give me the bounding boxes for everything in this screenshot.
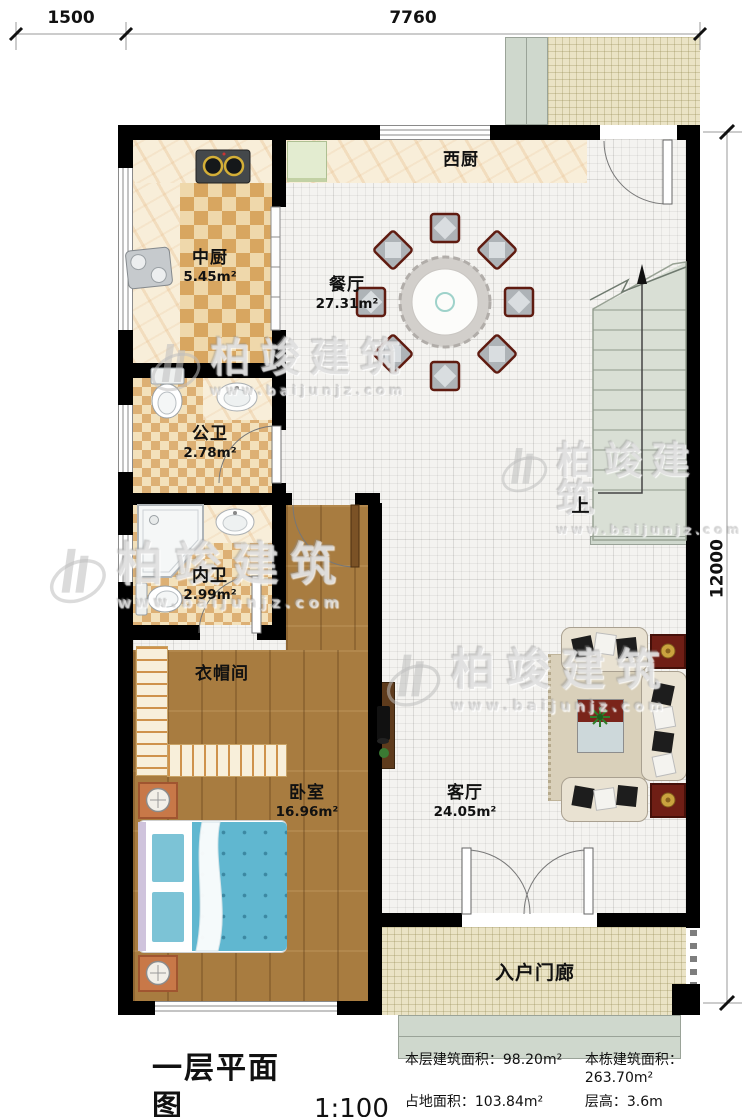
label-stair-up: 上: [568, 496, 594, 519]
kitchen-counter-top: [133, 139, 272, 185]
watermark-logo: [385, 648, 442, 712]
wall-bottom-living-left: [380, 913, 462, 927]
watermark-brand: 柏竣建筑: [210, 335, 410, 381]
room-area: 16.96m²: [257, 804, 357, 821]
terrace-floor: [548, 37, 700, 125]
floor-height-text: 层高：3.6m: [585, 1094, 737, 1112]
site-area-text: 占地面积：103.84m²: [405, 1094, 575, 1112]
wall-top-right: [490, 125, 600, 140]
label-west-kitchen: 西厨: [411, 150, 511, 171]
wall-bottom-living-right: [597, 913, 686, 927]
drawing-scale: 1:100: [314, 1093, 389, 1117]
watermark-logo: [500, 442, 549, 497]
stair-up-text: 上: [568, 496, 594, 519]
watermark-url: www.baijunjz.com: [210, 384, 410, 399]
watermark-logo: [150, 338, 202, 396]
room-area: 2.99m²: [160, 587, 260, 604]
window-kitchen-left: [118, 168, 133, 330]
pillow-1: [150, 832, 186, 884]
watermark-url: www.baijunjz.com: [451, 699, 671, 716]
watermark-brand: 柏竣建筑: [451, 645, 671, 696]
room-area: 24.05m²: [415, 804, 515, 821]
title-block: 一层平面图 1:100 本层建筑面积：98.20m² 本栋建筑面积：263.70…: [152, 1050, 737, 1117]
cloakroom-wardrobe-bottom: [167, 744, 287, 777]
sofa-bottom: [561, 777, 648, 822]
drawing-title: 一层平面图: [152, 1050, 302, 1117]
label-entry-porch: 入户门廊: [460, 962, 610, 986]
floor-area-text: 本层建筑面积：98.20m²: [405, 1052, 575, 1087]
room-name: 衣帽间: [162, 664, 282, 685]
side-table-bottom: [650, 783, 686, 818]
pillow-2: [150, 890, 186, 944]
room-name: 内卫: [160, 566, 260, 587]
room-name: 中厨: [160, 248, 260, 269]
label-ensuite-bath: 内卫 2.99m²: [160, 566, 260, 604]
room-name: 入户门廊: [460, 962, 610, 986]
label-living: 客厅 24.05m²: [415, 783, 515, 821]
nightstand-top: [138, 782, 178, 819]
wall-suite-living: [368, 503, 382, 1015]
wall-right: [686, 125, 700, 1015]
room-name: 西厨: [411, 150, 511, 171]
room-area: 27.31m²: [297, 296, 397, 313]
bed-mattress: [192, 822, 287, 951]
area-info-grid: 本层建筑面积：98.20m² 本栋建筑面积：263.70m² 占地面积：103.…: [405, 1052, 737, 1112]
total-area-text: 本栋建筑面积：263.70m²: [585, 1052, 737, 1087]
watermark-4: 柏竣建筑 www.baijunjz.com: [385, 648, 671, 715]
watermark-logo: [48, 542, 108, 609]
drawing-title-group: 一层平面图 1:100: [152, 1050, 389, 1117]
wall-bath-divider: [118, 493, 286, 505]
room-name: 客厅: [415, 783, 515, 804]
wall-top-left: [118, 125, 380, 140]
wall-kitchen-right-a: [272, 139, 286, 207]
label-cloakroom: 衣帽间: [162, 664, 282, 685]
label-chinese-kitchen: 中厨 5.45m²: [160, 248, 260, 286]
window-top: [380, 125, 490, 140]
dim-1500: 1500: [36, 8, 106, 29]
floor-plan-canvas: 柏竣建筑 www.baijunjz.com 柏竣建筑 www.baijunjz.…: [0, 0, 750, 1117]
wall-right-corner: [672, 984, 700, 1015]
dim-7760: 7760: [378, 8, 448, 29]
label-dining: 餐厅 27.31m²: [297, 275, 397, 313]
window-bedroom: [155, 1001, 337, 1015]
wall-ensuite-bottom-a: [118, 625, 200, 640]
nightstand-bottom: [138, 955, 178, 992]
room-name: 公卫: [160, 424, 260, 445]
dim-12000: 12000: [707, 536, 728, 602]
watermark-2: 柏竣建筑 www.baijunjz.com: [500, 442, 744, 538]
room-name: 卧室: [257, 783, 357, 804]
wall-suite-top-a: [286, 493, 292, 505]
ensuite-bath-counter: [203, 505, 272, 543]
fridge: [287, 141, 327, 182]
label-bedroom: 卧室 16.96m²: [257, 783, 357, 821]
bed-headboard: [138, 822, 146, 951]
room-area: 5.45m²: [160, 269, 260, 286]
watermark-1: 柏竣建筑 www.baijunjz.com: [150, 338, 410, 399]
room-area: 2.78m²: [160, 445, 260, 462]
room-name: 餐厅: [297, 275, 397, 296]
label-public-bath: 公卫 2.78m²: [160, 424, 260, 462]
terrace-steps: [505, 37, 548, 125]
window-porch-column: [686, 928, 700, 986]
window-public-bath: [118, 405, 133, 472]
